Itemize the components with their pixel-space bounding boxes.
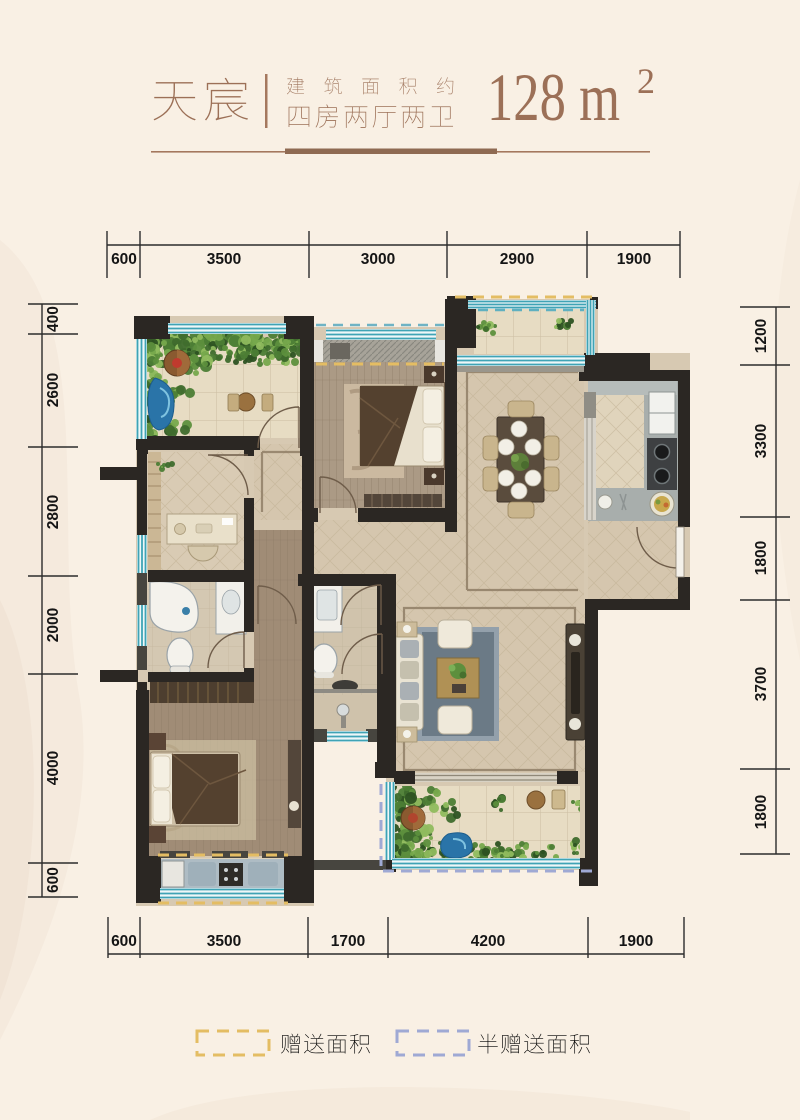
- svg-text:2000: 2000: [45, 608, 62, 642]
- svg-text:1700: 1700: [331, 933, 365, 950]
- svg-text:2600: 2600: [45, 373, 62, 407]
- svg-text:3500: 3500: [207, 251, 241, 268]
- svg-text:600: 600: [45, 867, 62, 893]
- svg-text:2900: 2900: [500, 251, 534, 268]
- svg-text:600: 600: [111, 251, 137, 268]
- svg-text:600: 600: [111, 933, 137, 950]
- svg-text:4000: 4000: [45, 751, 62, 785]
- svg-text:2800: 2800: [45, 495, 62, 529]
- svg-text:128 m: 128 m: [487, 59, 620, 135]
- svg-text:1800: 1800: [753, 541, 770, 575]
- svg-text:3000: 3000: [361, 251, 395, 268]
- svg-text:3500: 3500: [207, 933, 241, 950]
- svg-text:1900: 1900: [619, 933, 653, 950]
- svg-text:3700: 3700: [753, 667, 770, 701]
- svg-text:1800: 1800: [753, 795, 770, 829]
- svg-text:4200: 4200: [471, 933, 505, 950]
- svg-text:1200: 1200: [753, 319, 770, 353]
- svg-text:3300: 3300: [753, 424, 770, 458]
- svg-text:2: 2: [637, 61, 655, 101]
- svg-text:1900: 1900: [617, 251, 651, 268]
- svg-text:400: 400: [45, 306, 62, 332]
